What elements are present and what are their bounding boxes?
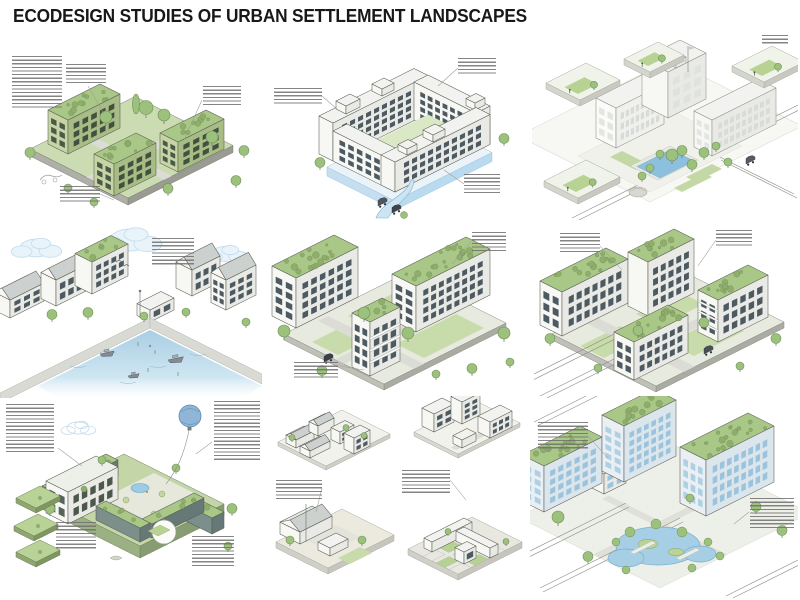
leader-line [322, 96, 338, 110]
sketch-blob [110, 556, 122, 560]
bush-icon [622, 566, 630, 574]
annotation-text [274, 88, 322, 104]
cloud-icon [11, 238, 61, 257]
tree-icon [315, 158, 325, 171]
poplar-tree-icon [133, 94, 140, 114]
ground-block [14, 514, 58, 541]
tree-icon [594, 364, 602, 374]
village-block-study [278, 410, 390, 470]
car-icon [746, 156, 755, 166]
annotation-text [750, 498, 794, 528]
cloud-icon [61, 421, 96, 434]
tree-icon [83, 308, 93, 321]
annotation-text [276, 480, 322, 499]
annotation-text [560, 233, 600, 252]
car-sketch [40, 175, 62, 184]
annotation-text [716, 230, 752, 246]
panel-harbor-waterfront-houses [0, 226, 262, 398]
annotation-text [66, 64, 106, 83]
tree-icon [47, 310, 57, 323]
leader-line [698, 240, 716, 266]
annotation-text [294, 362, 338, 378]
tree-icon [239, 146, 249, 159]
poster-title: ECODESIGN STUDIES OF URBAN SETTLEMENT LA… [13, 6, 527, 27]
modern-blocks-study [414, 396, 520, 458]
tree-icon [498, 327, 510, 342]
annotation-text [12, 56, 62, 108]
bush-icon [704, 538, 712, 546]
green-roof-platform [732, 46, 798, 88]
annotation-text [203, 86, 241, 105]
tree-icon [467, 364, 477, 377]
panel-green-roof-perimeter-buildings [266, 226, 528, 398]
stone-mound [629, 187, 647, 197]
tree-icon [227, 504, 237, 517]
harbor-waterfront-illustration [0, 226, 262, 398]
annotation-text [192, 536, 234, 566]
annotation-text [152, 238, 194, 265]
bush-icon [625, 527, 635, 537]
panel-campus-plaza-pool-study [532, 32, 798, 220]
annotation-text [402, 470, 450, 493]
tree-icon [182, 308, 190, 318]
courtyard-water-garden-illustration [262, 52, 528, 220]
tree-icon [172, 464, 180, 474]
tree-icon [771, 334, 781, 347]
panel-settlement-typology-studies [266, 396, 528, 598]
tree-icon [231, 176, 241, 189]
annotation-text [458, 58, 496, 74]
leader-line [438, 68, 458, 86]
annotation-text [538, 422, 588, 449]
buoy-icon [149, 345, 151, 347]
tree-icon [499, 134, 509, 147]
leader-line [196, 442, 212, 454]
bush-icon [677, 527, 687, 537]
annotation-text [56, 522, 96, 549]
bush-icon [651, 519, 661, 529]
tree-icon [724, 158, 732, 168]
tree-icon [506, 358, 514, 368]
panel-street-intersection-green-roofs [534, 226, 798, 398]
campus-plaza-pool-illustration [532, 32, 798, 220]
annotation-text [762, 35, 788, 44]
bush-icon [401, 212, 408, 219]
tree-icon [736, 362, 744, 372]
panel-glass-offices-pond-campus [530, 396, 798, 598]
tree-icon [163, 184, 173, 197]
tree-icon [545, 334, 555, 347]
panel-green-apartment-settlement [8, 48, 258, 220]
annotation-text [60, 186, 100, 202]
farm-courtyard-study [276, 504, 394, 574]
green-courtyard-grid-study [408, 517, 522, 580]
flat-roof-house [75, 236, 128, 295]
tree-icon [432, 370, 440, 380]
tree-icon [25, 148, 35, 161]
annotation-text [6, 404, 54, 452]
annotation-text [464, 174, 500, 193]
bush-icon [716, 552, 724, 560]
rail-line [726, 560, 798, 598]
green-roof-detail-icon [16, 540, 60, 567]
panel-eco-courtyard-analysis [6, 396, 262, 598]
poster-board: ECODESIGN STUDIES OF URBAN SETTLEMENT LA… [0, 0, 800, 600]
bush-icon [612, 538, 620, 546]
annotation-text [214, 401, 260, 460]
leader-line [450, 480, 466, 500]
annotation-text [472, 232, 506, 251]
gabled-house [0, 271, 44, 318]
green-roof-detail-icon [14, 514, 58, 541]
panel-courtyard-water-garden-block [262, 52, 528, 220]
leader-line [58, 448, 82, 466]
bush-icon [688, 564, 696, 572]
balloon-icon [166, 405, 201, 484]
ground-block [16, 540, 60, 567]
tree-icon [242, 318, 250, 328]
